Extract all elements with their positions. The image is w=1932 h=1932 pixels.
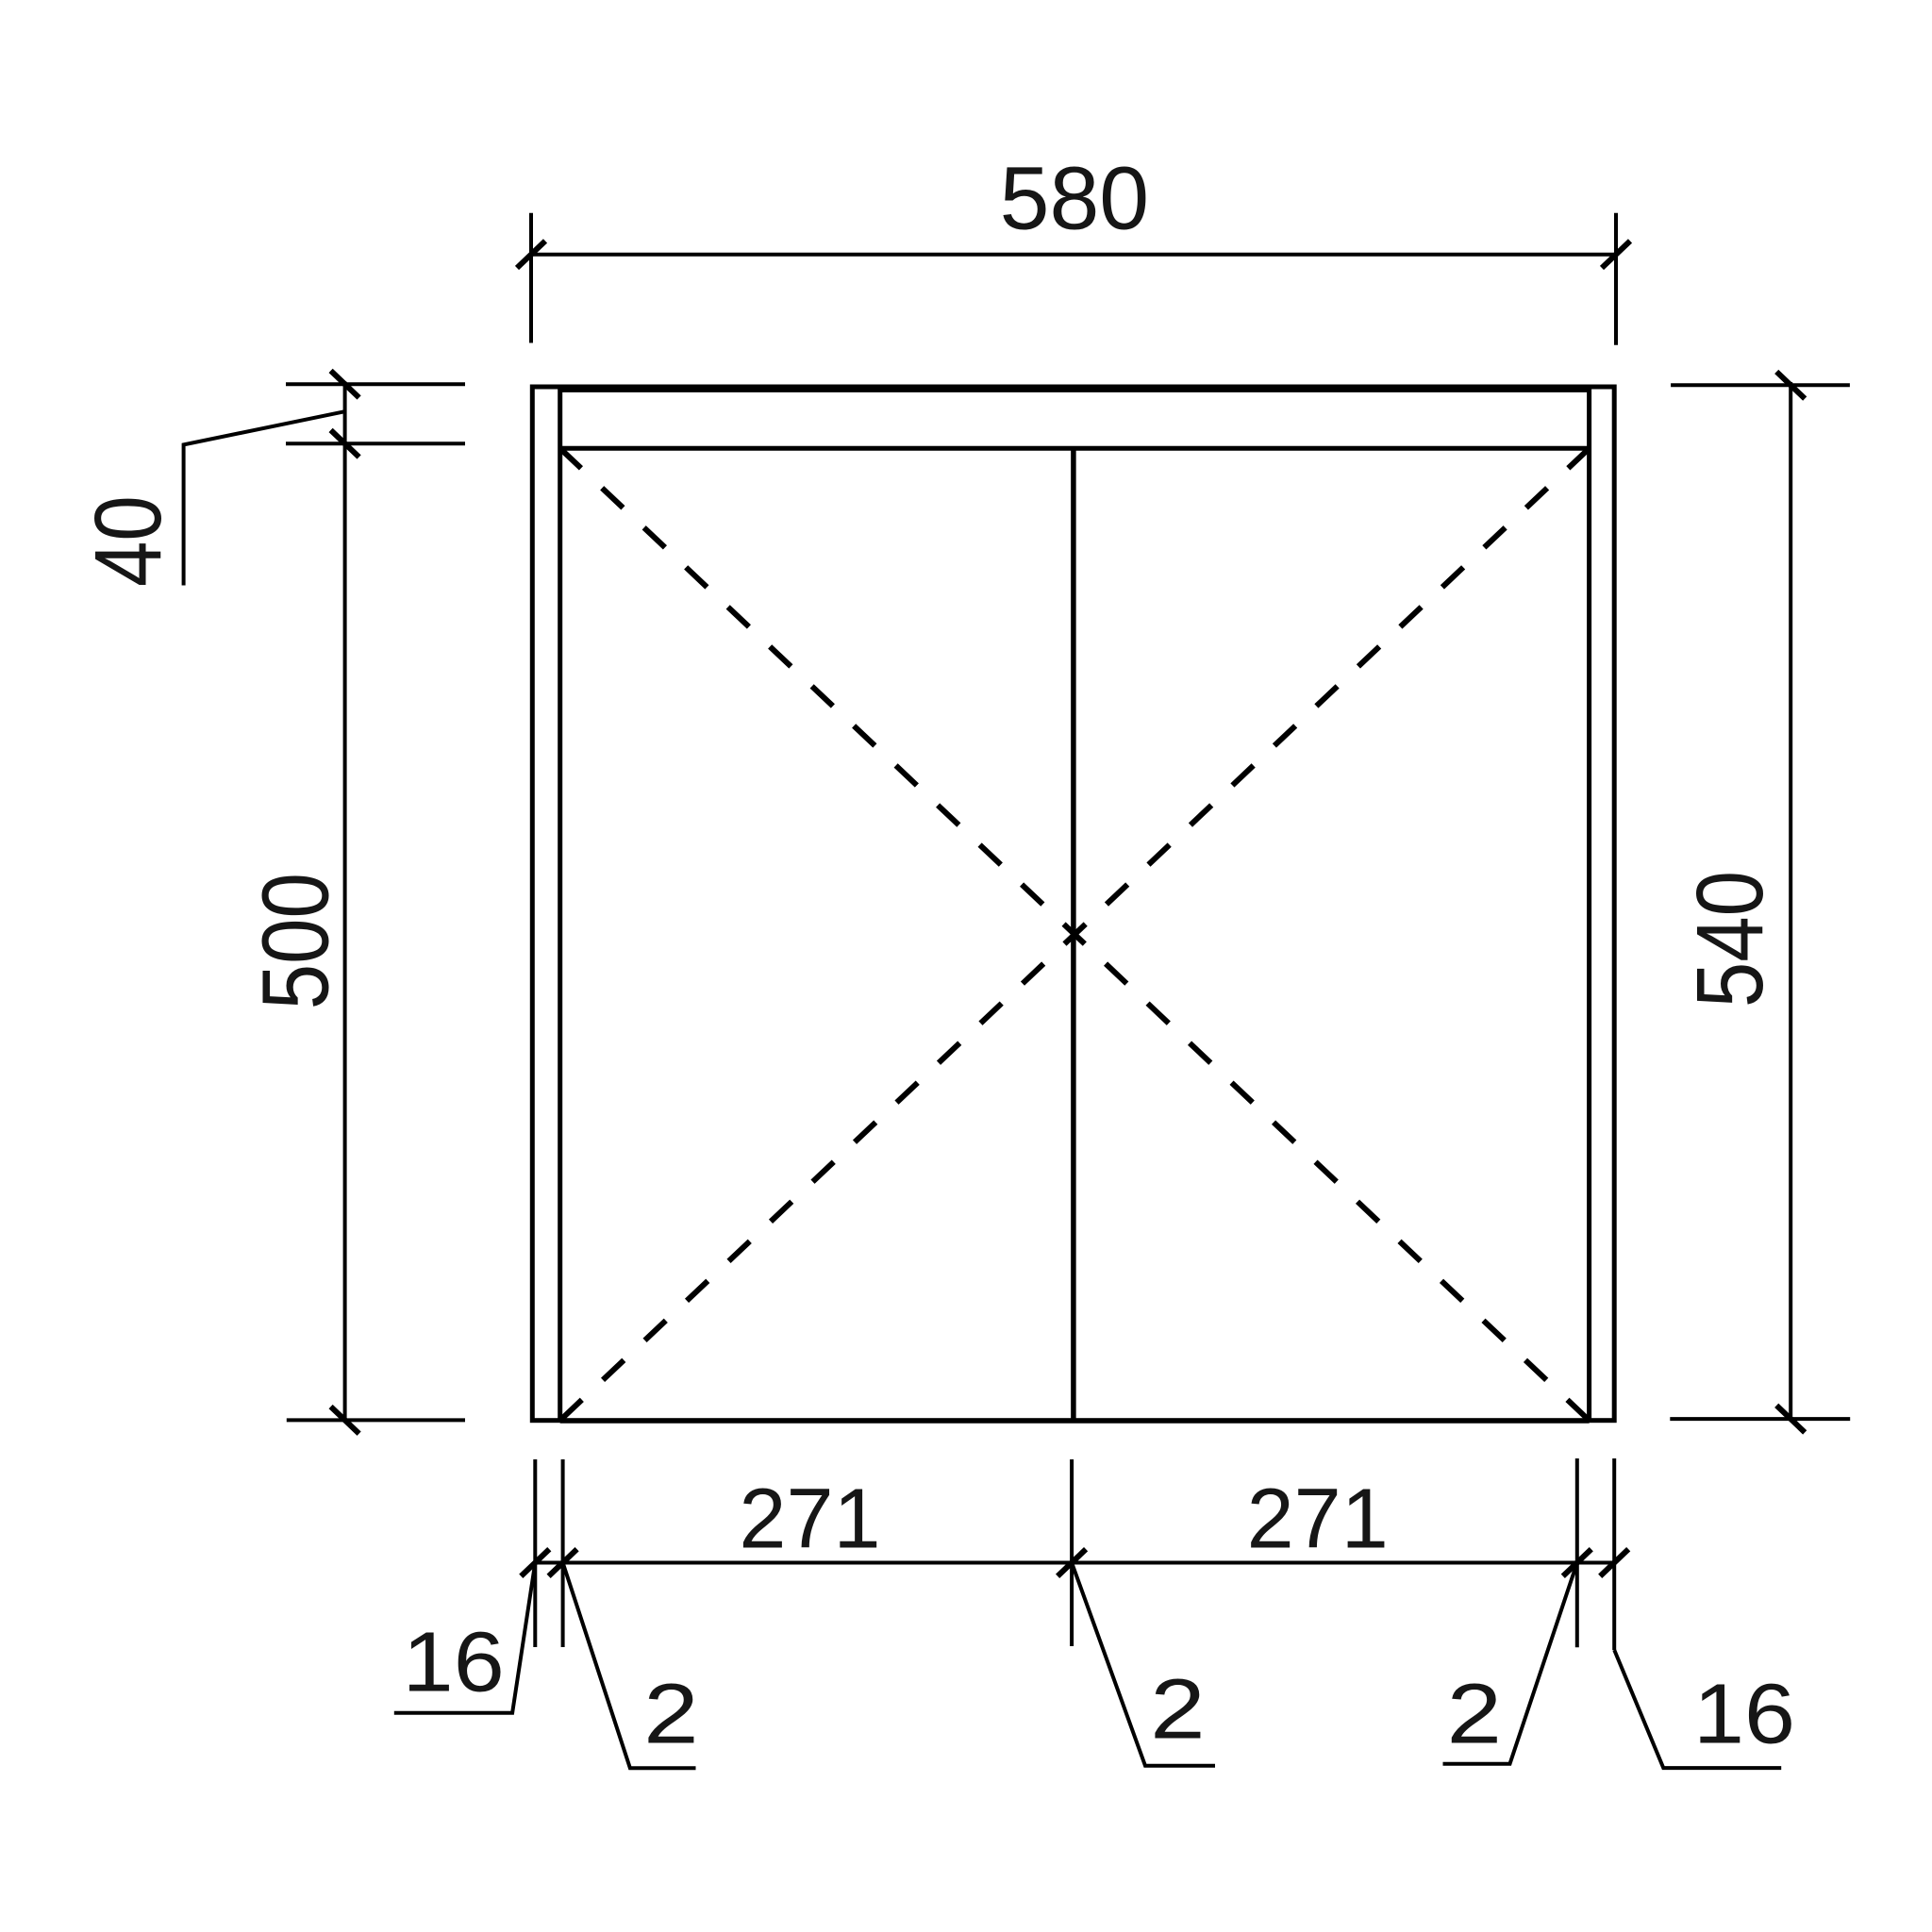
svg-text:540: 540 (1676, 871, 1782, 1008)
svg-text:271: 271 (739, 1472, 880, 1566)
svg-text:2: 2 (643, 1666, 699, 1761)
svg-text:2: 2 (1447, 1666, 1503, 1761)
svg-text:271: 271 (1247, 1472, 1389, 1566)
svg-text:16: 16 (1693, 1666, 1795, 1761)
svg-text:16: 16 (403, 1614, 505, 1709)
svg-text:500: 500 (242, 873, 348, 1009)
svg-text:40: 40 (75, 495, 180, 587)
svg-text:580: 580 (1000, 149, 1150, 249)
svg-text:2: 2 (1150, 1661, 1206, 1757)
